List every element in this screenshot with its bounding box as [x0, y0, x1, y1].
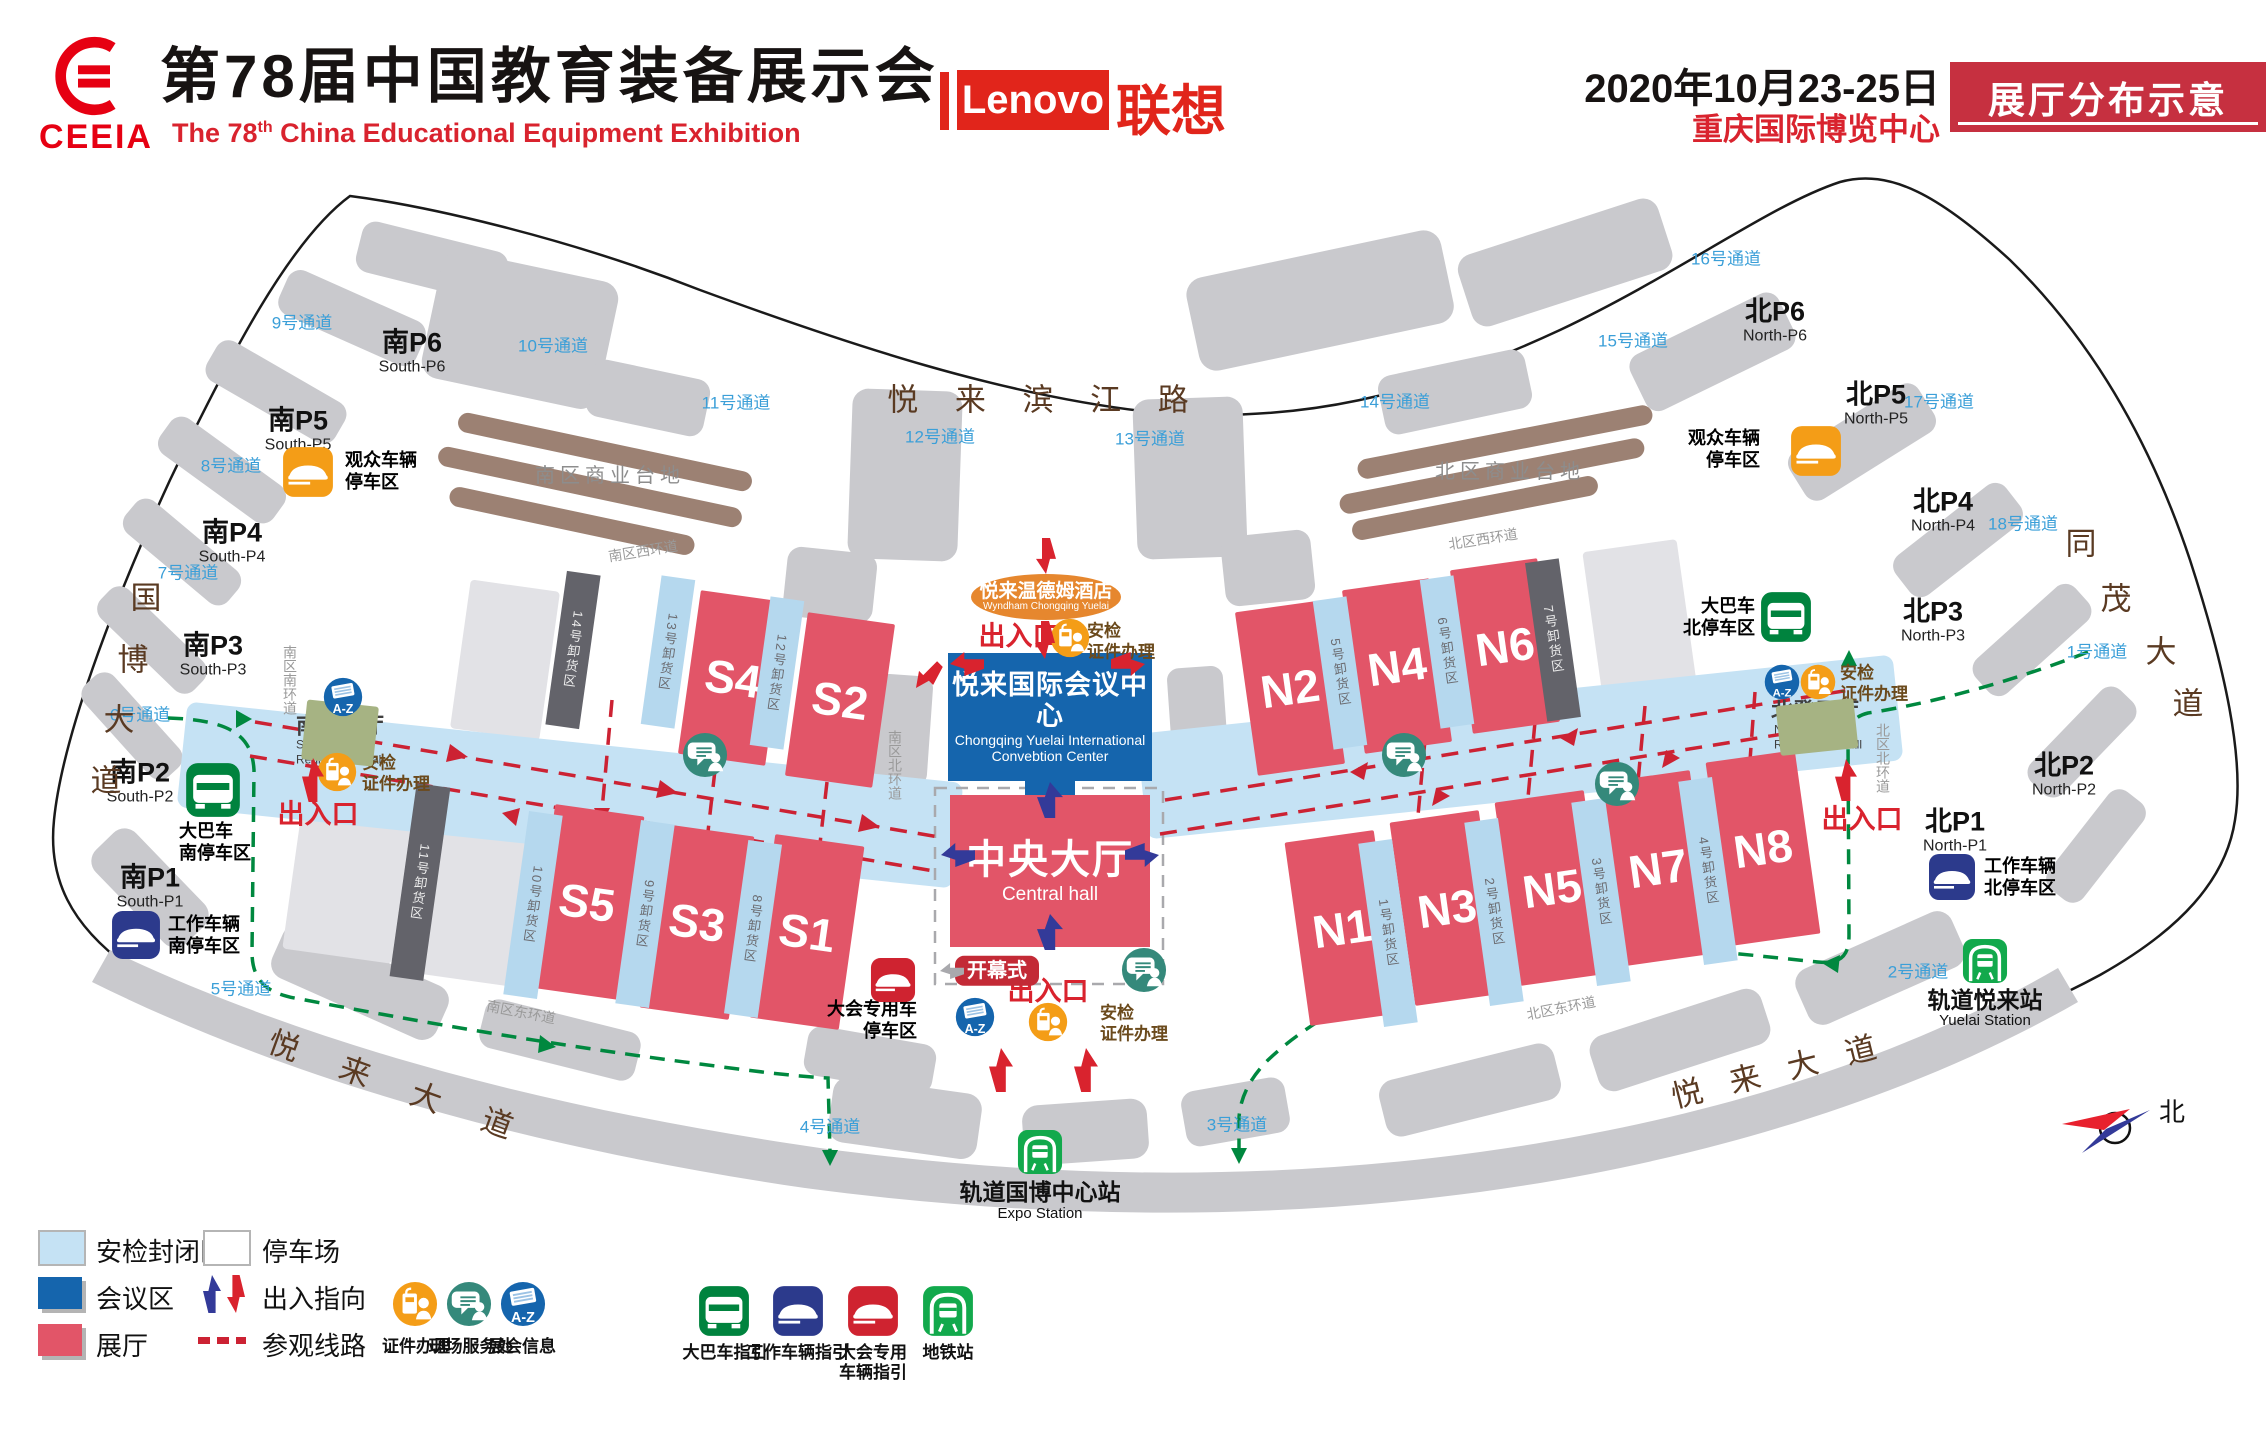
security-credential-label-bottom-line: 证件办理 — [1100, 1024, 1168, 1045]
yuelai-station-name-cn: 轨道悦来站 — [1928, 986, 2043, 1014]
opening-ceremony-badge-line: 开幕式 — [967, 959, 1027, 983]
staff-parking-north-label: 工作车辆北停车区 — [1984, 856, 2056, 900]
passage-label: 18号通道 — [1988, 510, 2058, 535]
legend-staff-car-icon — [772, 1285, 824, 1337]
passage-label: 11号通道 — [702, 389, 771, 414]
visitor-parking-label-north-line: 观众车辆 — [1688, 428, 1760, 450]
parking-name-en: South-P4 — [199, 548, 266, 566]
security-credential-label-bottom-line: 安检 — [1100, 1003, 1168, 1024]
bus-parking-south-label-line: 大巴车 — [179, 821, 251, 843]
road-label: 南区北环道 — [885, 730, 905, 800]
navy-arrow-left — [941, 843, 975, 867]
visitor-parking-label-north: 观众车辆停车区 — [1688, 428, 1760, 472]
passage-label: 1号通道 — [2067, 638, 2127, 663]
south-commercial-terrace-label: 南区商业台地 — [535, 464, 685, 488]
compass-north-label: 北 — [2159, 1097, 2185, 1129]
yuelai-station-name-en: Yuelai Station — [1939, 1012, 2031, 1030]
parking-label-north-p3: 北P3North-P3 — [1901, 597, 1965, 644]
road-label: 悦 来 大 道 — [1666, 1020, 1890, 1117]
passage-label: 15号通道 — [1598, 327, 1668, 352]
legend-conference-car-icon — [847, 1285, 899, 1337]
conference-car-icon — [870, 957, 916, 1003]
passage-label: 12号通道 — [905, 423, 975, 448]
south-commercial-terrace-label-line: 南区商业台地 — [535, 464, 685, 488]
parking-name-en: North-P1 — [1923, 837, 1987, 855]
service-desk-icon — [682, 732, 728, 778]
entrance-label-south: 出入口 — [278, 799, 359, 832]
passage-label: 10号通道 — [518, 332, 588, 357]
legend-exhibition-info-icon: A-Z — [500, 1281, 546, 1327]
bus-parking-south-label-line: 南停车区 — [179, 843, 251, 865]
parking-name-en: North-P6 — [1743, 327, 1807, 345]
passage-label: 17号通道 — [1904, 388, 1974, 413]
loading-zone: 11号卸货区 — [390, 783, 451, 981]
road-label: 茂 — [2101, 574, 2132, 619]
opening-ceremony-badge: 开幕式 — [955, 956, 1039, 986]
legend-info-caption: 展会信息 — [486, 1337, 558, 1357]
parking-label-north-p5: 北P5North-P5 — [1844, 380, 1908, 427]
parking-label-north-p4: 北P4North-P4 — [1911, 487, 1975, 534]
security-credential-label-top-line: 安检 — [1087, 621, 1155, 642]
road-label: 博 — [118, 635, 149, 680]
entrance-label-north-line: 出入口 — [1822, 804, 1903, 837]
security-credential-label-north-line: 安检 — [1840, 663, 1908, 684]
parking-name-cn: 南P1 — [117, 863, 184, 893]
road-label: 北区东环道 — [1525, 992, 1598, 1025]
yuelai-station-name-cn-line: 轨道悦来站 — [1928, 986, 2043, 1014]
credential-icon — [1800, 664, 1836, 700]
north-commercial-terrace-label: 北区商业台地 — [1435, 460, 1585, 484]
visitor-parking-label-south-line: 停车区 — [345, 472, 417, 494]
legend-metro-caption: 地铁站 — [914, 1343, 982, 1363]
parking-label-south-p3: 南P3South-P3 — [180, 631, 247, 678]
expo-station-name-cn: 轨道国博中心站 — [960, 1178, 1121, 1206]
parking-name-cn: 北P4 — [1911, 487, 1975, 517]
metro-station-icon — [1962, 938, 2008, 984]
north-commercial-terrace-label-line: 北区商业台地 — [1435, 460, 1585, 484]
parking-name-en: North-P5 — [1844, 410, 1908, 428]
credential-icon — [1028, 1002, 1068, 1042]
road-label: 大 — [2146, 627, 2177, 672]
legend-dash-sample — [198, 1337, 246, 1344]
navy-arrow-up — [1037, 914, 1063, 950]
service-desk-icon — [1121, 947, 1167, 993]
passage-label: 13号通道 — [1115, 425, 1185, 450]
service-desk-icon — [1381, 732, 1427, 778]
legend-label-conference: 会议区 — [96, 1279, 174, 1316]
parking-name-cn: 南P5 — [265, 406, 332, 436]
road-label: 道 — [91, 756, 122, 801]
bus-parking-north-label-line: 大巴车 — [1683, 596, 1755, 618]
road-label: 悦 来 滨 江 路 — [887, 375, 1202, 420]
parking-name-en: North-P2 — [2032, 781, 2096, 799]
staff-parking-north-label-line: 工作车辆 — [1984, 856, 2056, 878]
legend-metro-icon — [922, 1285, 974, 1337]
parking-name-cn: 北P5 — [1844, 380, 1908, 410]
service-desk-icon — [1594, 761, 1640, 807]
legend-credential-icon — [392, 1281, 438, 1327]
staff-car-icon — [111, 910, 161, 960]
legend-label-hall: 展厅 — [96, 1326, 148, 1363]
road-label: 北区北环道 — [1873, 723, 1893, 793]
passage-label: 4号通道 — [800, 1113, 860, 1138]
passage-label: 14号通道 — [1360, 388, 1430, 413]
map-layer: S4S2S5S3S1N2N4N6N1N3N5N7N814号卸货区13号卸货区12… — [0, 0, 2266, 1429]
passage-label: 3号通道 — [1207, 1111, 1267, 1136]
visitor-car-icon — [282, 446, 334, 498]
compass-north-label-line: 北 — [2159, 1097, 2185, 1129]
staff-parking-south-label-line: 南停车区 — [168, 936, 240, 958]
legend-label-direction: 出入指向 — [262, 1279, 366, 1316]
red-arrow-sw — [909, 657, 947, 695]
bus-parking-north-label: 大巴车北停车区 — [1683, 596, 1755, 640]
legend-service-desk-icon — [446, 1281, 492, 1327]
passage-label: 16号通道 — [1691, 245, 1761, 270]
road-label: 同 — [2066, 519, 2097, 564]
red-arrow-up — [989, 1048, 1013, 1092]
security-credential-label-south-line: 证件办理 — [362, 774, 430, 795]
entrance-label-north: 出入口 — [1822, 804, 1903, 837]
legend-swatch-conference — [38, 1277, 82, 1309]
legend-swatch-hall — [38, 1324, 82, 1356]
red-arrow-up — [1835, 759, 1857, 801]
passage-label: 2号通道 — [1888, 958, 1948, 983]
visitor-parking-label-south-line: 观众车辆 — [345, 450, 417, 472]
exhibition-info-icon: A-Z — [955, 997, 995, 1037]
conference-car-parking-label: 大会专用车停车区 — [827, 999, 917, 1043]
passage-label: 5号通道 — [211, 975, 271, 1000]
svg-text:A-Z: A-Z — [333, 702, 354, 716]
parking-name-en: North-P3 — [1901, 627, 1965, 645]
exhibition-info-icon: A-Z — [1764, 664, 1800, 700]
credential-icon — [317, 752, 357, 792]
road-label: 国 — [131, 573, 162, 618]
loading-zone: 14号卸货区 — [545, 571, 600, 729]
svg-text:A-Z: A-Z — [1773, 687, 1792, 699]
road-label: 悦 来 大 道 — [263, 1017, 538, 1154]
staff-parking-south-label: 工作车辆南停车区 — [168, 914, 240, 958]
parking-label-south-p4: 南P4South-P4 — [199, 518, 266, 565]
bus-icon — [1760, 591, 1812, 643]
parking-label-north-p6: 北P6North-P6 — [1743, 297, 1807, 344]
expo-station-name-en: Expo Station — [997, 1205, 1082, 1223]
legend-label-parking: 停车场 — [262, 1232, 340, 1269]
parking-name-en: South-P6 — [379, 358, 446, 376]
parking-name-cn: 北P1 — [1923, 807, 1987, 837]
road-label: 大 — [104, 695, 135, 740]
visitor-parking-label-north-line: 停车区 — [1688, 450, 1760, 472]
bus-parking-north-label-line: 北停车区 — [1683, 618, 1755, 640]
red-arrow-up — [1074, 1048, 1098, 1092]
parking-name-en: South-P1 — [117, 893, 184, 911]
parking-name-en: South-P3 — [180, 661, 247, 679]
exhibition-info-icon: A-Z — [323, 677, 363, 717]
staff-car-icon — [1928, 853, 1976, 901]
road-label: 南区西环道 — [607, 536, 679, 567]
road-label: 南区东环道 — [485, 996, 558, 1029]
legend-bus-icon — [698, 1285, 750, 1337]
credential-icon — [1050, 618, 1090, 658]
parking-name-cn: 南P4 — [199, 518, 266, 548]
visitor-parking-label-south: 观众车辆停车区 — [345, 450, 417, 494]
bus-icon — [185, 762, 241, 818]
navy-arrow-right — [1125, 843, 1159, 867]
staff-parking-north-label-line: 北停车区 — [1984, 878, 2056, 900]
entrance-label-south-line: 出入口 — [278, 799, 359, 832]
visitor-car-icon — [1790, 425, 1842, 477]
passage-label: 9号通道 — [272, 309, 332, 334]
parking-label-north-p2: 北P2North-P2 — [2032, 751, 2096, 798]
expo-station-name-cn-line: 轨道国博中心站 — [960, 1178, 1121, 1206]
parking-name-cn: 北P6 — [1743, 297, 1807, 327]
legend-swatch-secure-zone — [38, 1230, 86, 1266]
exhibition-map-page: CEEIA 第78届中国教育装备展示会 The 78th China Educa… — [0, 0, 2266, 1429]
conference-car-parking-label-line: 停车区 — [827, 1021, 917, 1043]
road-label: 南区南环道 — [280, 645, 300, 715]
legend-swatch-parking — [203, 1230, 251, 1266]
expo-station-name-en-line: Expo Station — [997, 1205, 1082, 1223]
parking-label-south-p1: 南P1South-P1 — [117, 863, 184, 910]
red-arrow-left — [950, 652, 984, 676]
metro-station-icon — [1017, 1129, 1063, 1175]
parking-name-en: North-P4 — [1911, 517, 1975, 535]
parking-name-cn: 北P2 — [2032, 751, 2096, 781]
security-credential-label-bottom: 安检证件办理 — [1100, 1003, 1168, 1044]
hall-S2: S2 — [785, 612, 895, 788]
yuelai-station-name-en-line: Yuelai Station — [1939, 1012, 2031, 1030]
registration-hall-area — [1776, 698, 1859, 756]
parking-name-cn: 北P3 — [1901, 597, 1965, 627]
bus-parking-south-label: 大巴车南停车区 — [179, 821, 251, 865]
parking-label-south-p6: 南P6South-P6 — [379, 328, 446, 375]
navy-arrow-up — [1037, 782, 1063, 818]
road-label: 北区西环道 — [1447, 524, 1519, 555]
legend-label-route: 参观线路 — [262, 1326, 366, 1363]
svg-text:A-Z: A-Z — [965, 1022, 986, 1036]
road-label: 道 — [2173, 679, 2204, 724]
staff-parking-south-label-line: 工作车辆 — [168, 914, 240, 936]
passage-label: 8号通道 — [201, 452, 261, 477]
parking-name-cn: 南P6 — [379, 328, 446, 358]
red-arrow-down — [1036, 538, 1056, 574]
svg-text:A-Z: A-Z — [511, 1310, 535, 1326]
parking-name-cn: 南P3 — [180, 631, 247, 661]
legend-conference-car-caption: 大会专用 车辆指引 — [833, 1343, 913, 1382]
parking-label-north-p1: 北P1North-P1 — [1923, 807, 1987, 854]
